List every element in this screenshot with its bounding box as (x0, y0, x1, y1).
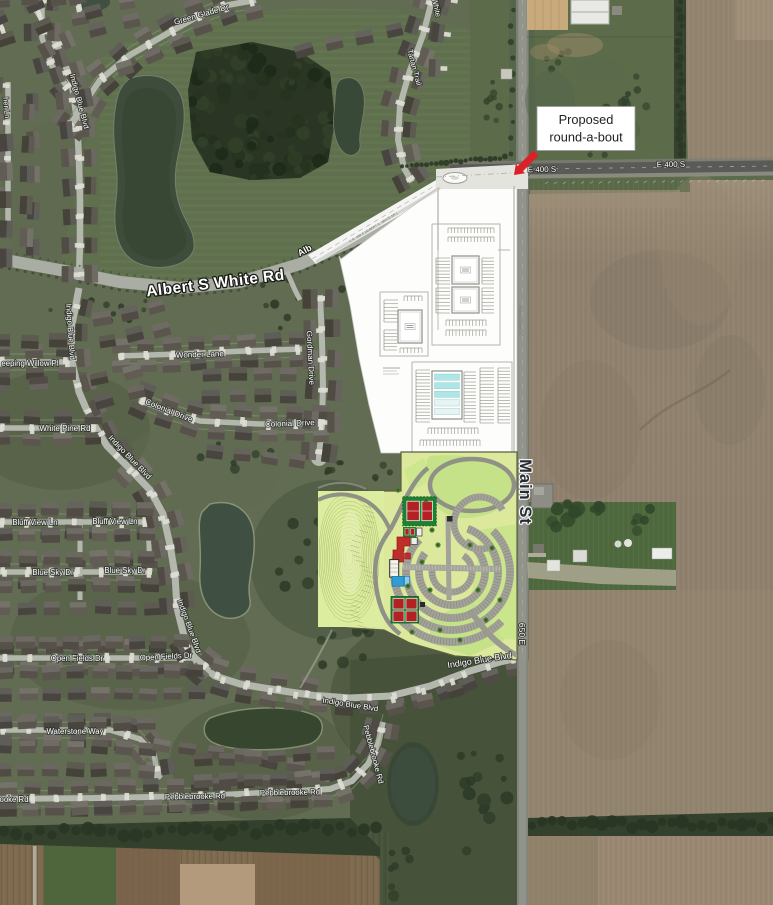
svg-text:Blue Sky Dr: Blue Sky Dr (32, 568, 74, 577)
svg-text:Bluff View Ln: Bluff View Ln (12, 518, 57, 527)
svg-text:Pebblebrooke Rd: Pebblebrooke Rd (165, 791, 225, 801)
svg-text:Main St: Main St (516, 459, 534, 525)
svg-text:Wonder Lane: Wonder Lane (176, 349, 225, 360)
svg-text:her Ln: her Ln (1, 97, 12, 119)
svg-text:Open Fields Dr: Open Fields Dr (51, 654, 104, 663)
svg-text:ooke Rd: ooke Rd (0, 795, 29, 804)
svg-text:Waterstone Way: Waterstone Way (46, 727, 103, 736)
svg-text:PROPOSED MAIN ST: PROPOSED MAIN ST (518, 305, 522, 335)
svg-text:E 400 S: E 400 S (657, 160, 686, 169)
svg-text:650 E: 650 E (517, 623, 527, 646)
svg-text:Proposed: Proposed (559, 112, 614, 127)
svg-text:Pebblebrooke Rd: Pebblebrooke Rd (260, 787, 320, 797)
svg-text:Bluff View Ln: Bluff View Ln (92, 517, 137, 526)
svg-text:E 400 S: E 400 S (528, 165, 557, 174)
svg-text:round-a-bout: round-a-bout (549, 130, 623, 145)
svg-text:Blue Sky Dr: Blue Sky Dr (104, 566, 146, 575)
svg-text:White Pine Rd: White Pine Rd (39, 424, 90, 433)
svg-text:Colonial Drive: Colonial Drive (265, 418, 316, 429)
svg-text:eeping Willow Pl: eeping Willow Pl (1, 359, 58, 368)
